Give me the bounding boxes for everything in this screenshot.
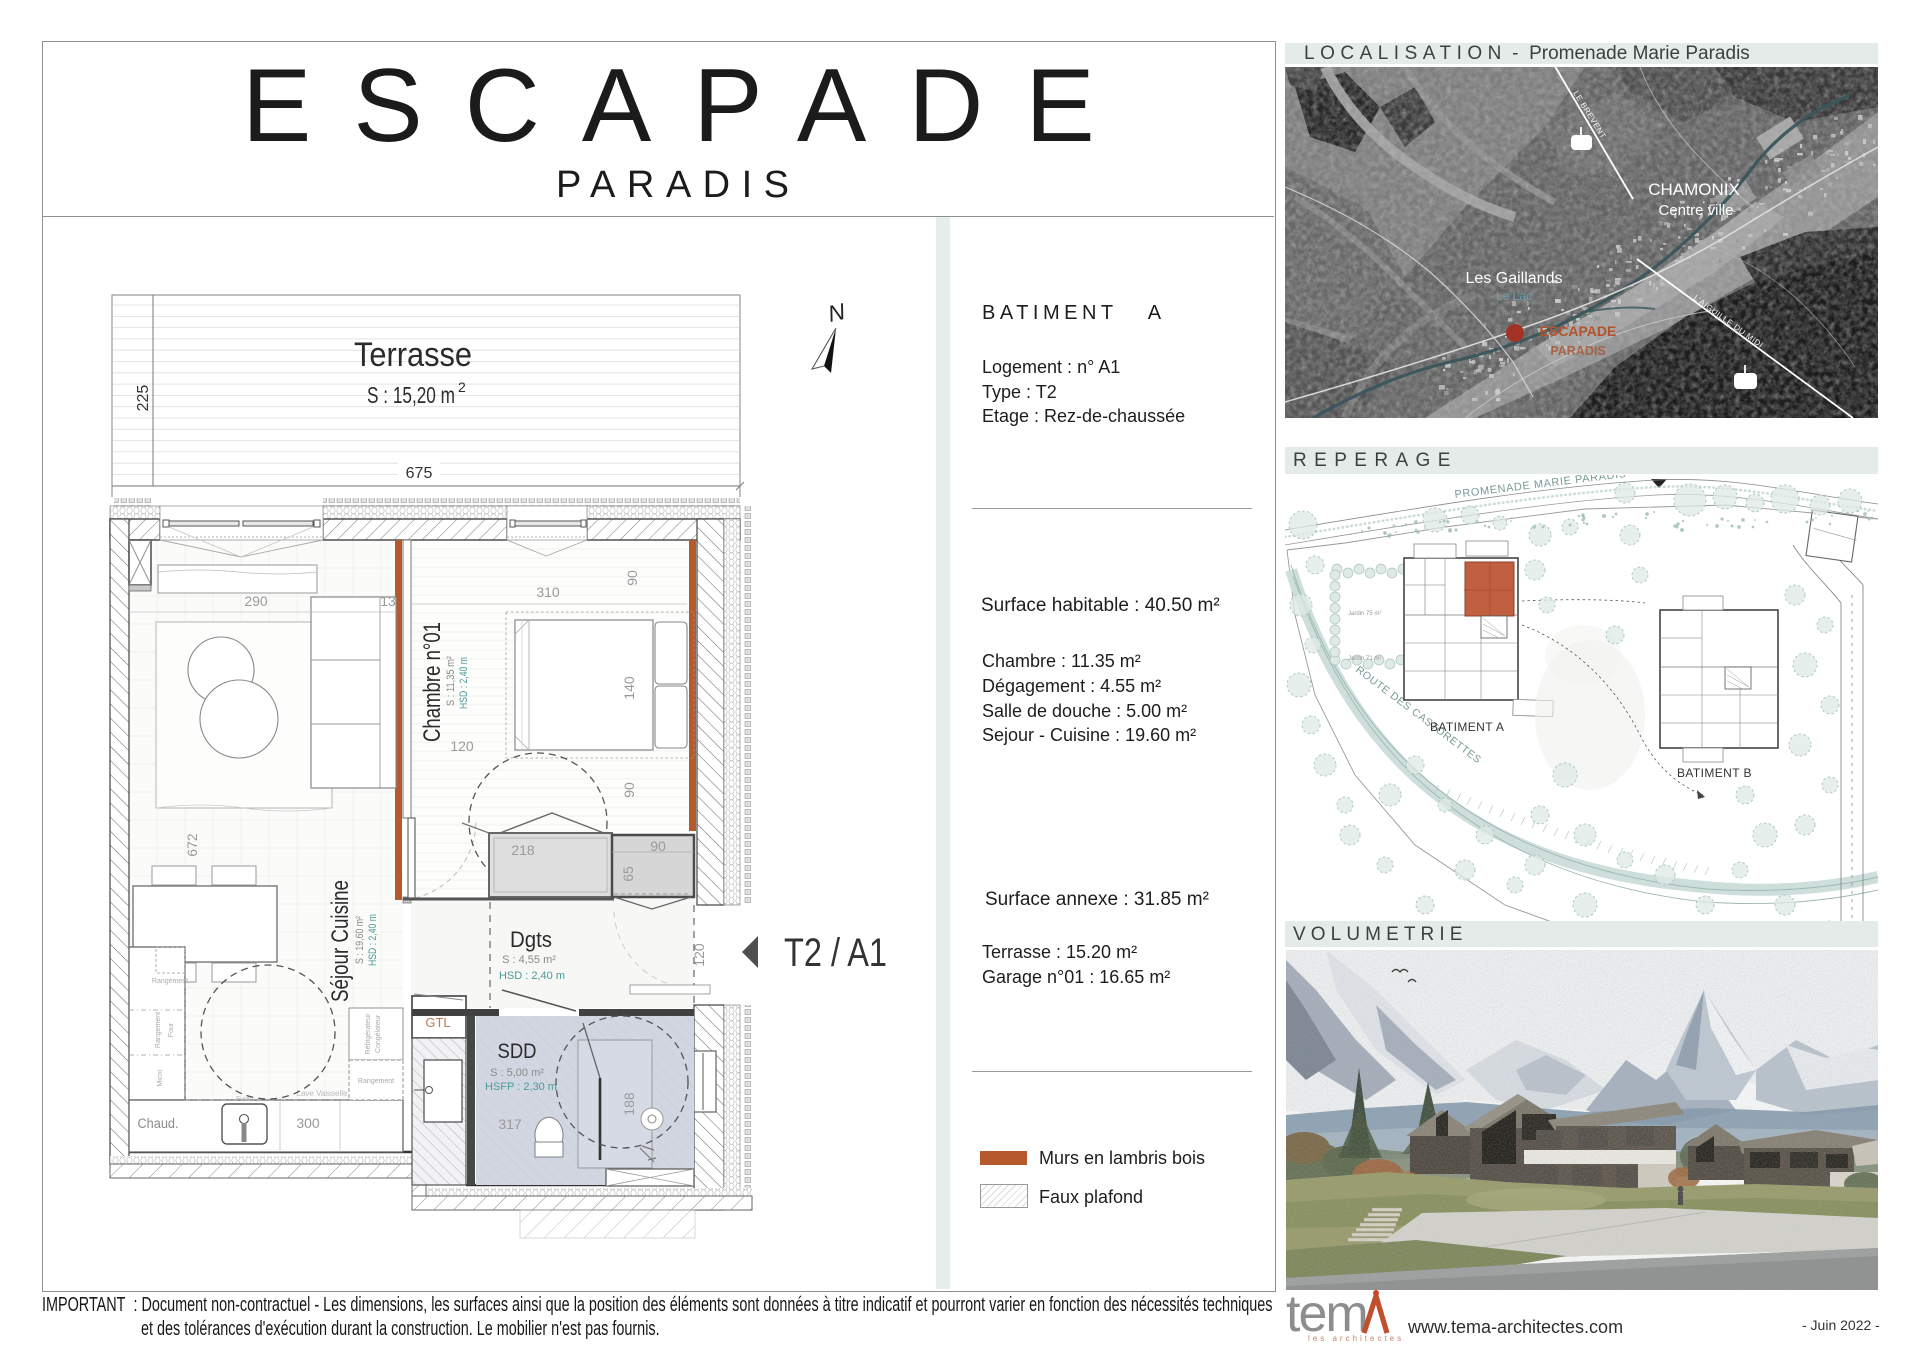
svg-text:317: 317 (498, 1116, 522, 1132)
svg-text:Chambre n°01: Chambre n°01 (419, 622, 446, 742)
svg-text:S : 15,20 m: S : 15,20 m (367, 382, 455, 408)
svg-text:90: 90 (621, 782, 637, 798)
svg-text:S : 5,00 m²: S : 5,00 m² (490, 1067, 544, 1079)
svg-text:188: 188 (621, 1092, 637, 1116)
svg-text:218: 218 (511, 842, 535, 858)
svg-text:HSD : 2,40 m: HSD : 2,40 m (499, 970, 565, 982)
svg-text:Jardin 71 m²: Jardin 71 m² (1348, 656, 1381, 662)
svg-text:Réfrigérateur: Réfrigérateur (365, 1013, 372, 1055)
svg-text:672: 672 (184, 833, 200, 857)
svg-text:Le Lac: Le Lac (1496, 289, 1532, 303)
svg-text:290: 290 (244, 593, 268, 609)
svg-text:65: 65 (620, 866, 636, 882)
svg-text:T2 / A1: T2 / A1 (784, 931, 887, 975)
svg-text:BATIMENT B: BATIMENT B (1677, 766, 1752, 780)
svg-text:S : 19,60 m²: S : 19,60 m² (354, 916, 366, 964)
svg-text:Séjour Cuisine: Séjour Cuisine (327, 880, 354, 1002)
svg-text:Four: Four (168, 1022, 175, 1037)
svg-text:310: 310 (536, 584, 560, 600)
svg-text:S : 11,35 m²: S : 11,35 m² (445, 656, 457, 706)
svg-text:Chaud.: Chaud. (138, 1116, 179, 1131)
svg-text:SDD: SDD (498, 1040, 537, 1063)
svg-text:Centre ville: Centre ville (1658, 202, 1733, 219)
svg-text:S : 4,55 m²: S : 4,55 m² (502, 954, 556, 966)
svg-text:Rangement: Rangement (152, 978, 188, 985)
svg-text:CHAMONIX: CHAMONIX (1648, 180, 1740, 199)
svg-text:Rangement: Rangement (155, 1012, 162, 1048)
svg-text:GTL: GTL (425, 1015, 450, 1030)
svg-text:HSFP : 2,30 m: HSFP : 2,30 m (485, 1081, 557, 1093)
svg-text:ESCAPADE: ESCAPADE (1540, 323, 1617, 339)
svg-text:13: 13 (380, 593, 396, 609)
svg-text:225: 225 (135, 385, 152, 412)
svg-text:N: N (826, 298, 848, 327)
svg-text:300: 300 (296, 1115, 320, 1131)
svg-text:120: 120 (450, 738, 474, 754)
svg-text:Congélateur: Congélateur (375, 1014, 382, 1053)
svg-text:PARADIS: PARADIS (1550, 344, 1605, 358)
svg-text:Rangement: Rangement (358, 1078, 394, 1085)
svg-text:BATIMENT A: BATIMENT A (1430, 720, 1504, 734)
svg-text:HSD : 2,40 m: HSD : 2,40 m (458, 657, 470, 709)
svg-text:Micro: Micro (157, 1069, 164, 1086)
svg-text:675: 675 (406, 465, 433, 482)
svg-text:90: 90 (650, 838, 666, 854)
svg-text:Lave Vaisselle: Lave Vaisselle (297, 1089, 349, 1098)
svg-text:90: 90 (624, 570, 640, 586)
svg-text:2: 2 (458, 379, 466, 395)
svg-text:Terrasse: Terrasse (354, 336, 472, 374)
svg-text:Les Gaillands: Les Gaillands (1466, 270, 1563, 287)
svg-text:Dgts: Dgts (510, 927, 552, 952)
svg-text:Jardin 75 m²: Jardin 75 m² (1348, 611, 1381, 617)
svg-text:HSD : 2,40 m: HSD : 2,40 m (367, 914, 379, 966)
svg-text:140: 140 (621, 676, 637, 700)
